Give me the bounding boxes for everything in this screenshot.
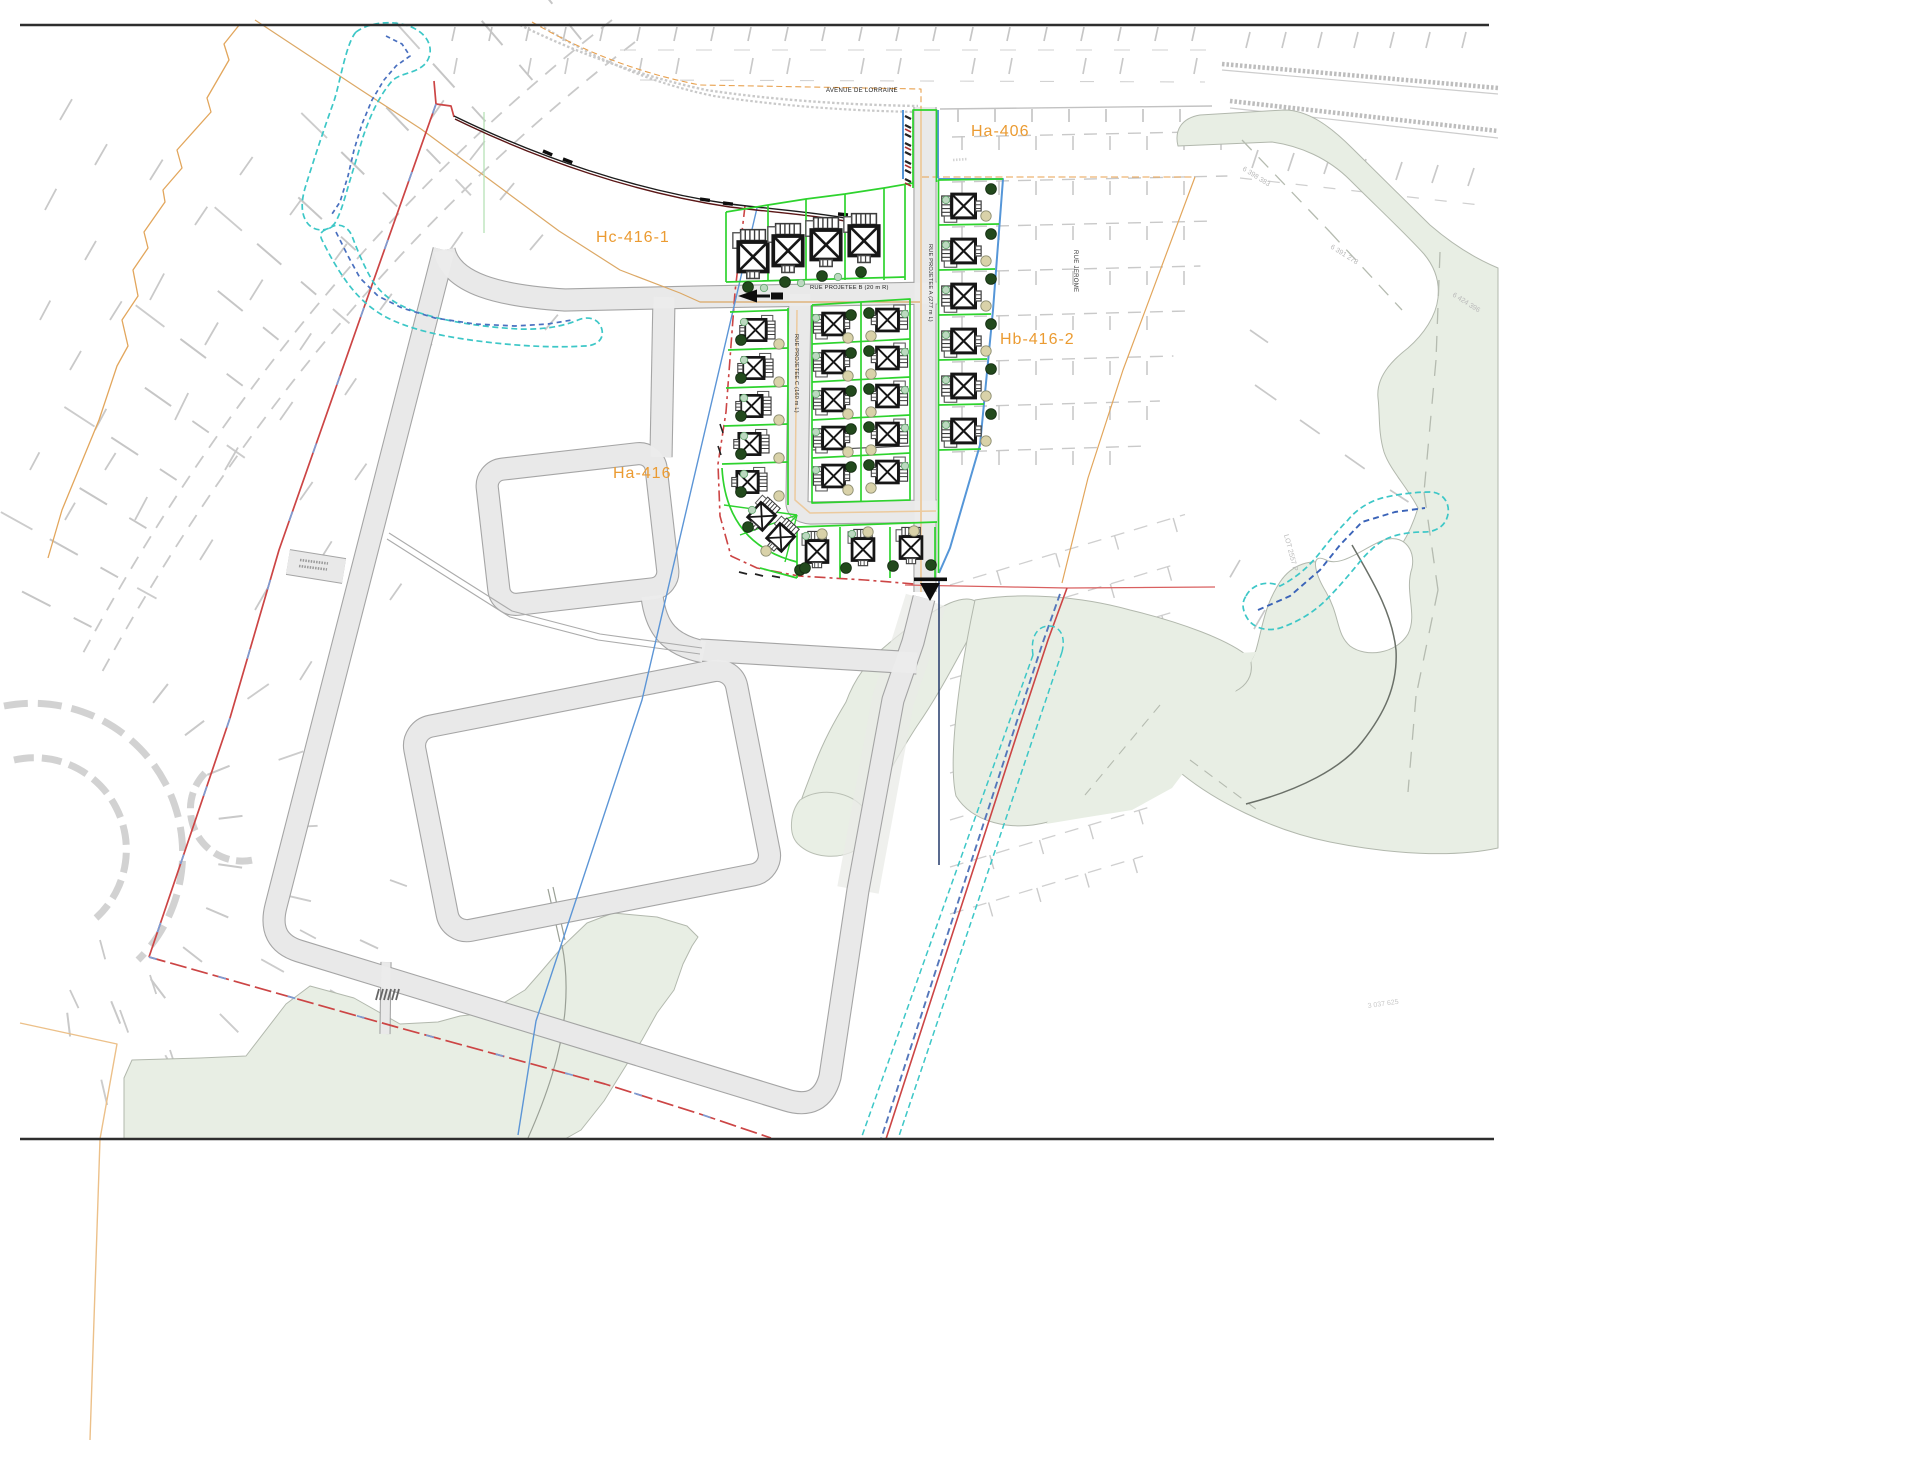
svg-text:RUE PROJETEE B (20 m R): RUE PROJETEE B (20 m R) xyxy=(810,285,889,291)
svg-text:Hc-416-1: Hc-416-1 xyxy=(596,229,670,246)
svg-text:Ha-406: Ha-406 xyxy=(971,123,1029,140)
svg-text:AVENUE DE LORRAINE: AVENUE DE LORRAINE xyxy=(826,88,898,94)
svg-text:RUE PROJETEE C (160 m L): RUE PROJETEE C (160 m L) xyxy=(793,334,799,413)
svg-text:RUE PROJETEE A (277 m L): RUE PROJETEE A (277 m L) xyxy=(927,244,933,322)
svg-text:RUE JEROME: RUE JEROME xyxy=(1072,250,1078,292)
svg-text:Hb-416-2: Hb-416-2 xyxy=(1000,331,1075,348)
svg-text:Ha-416: Ha-416 xyxy=(613,465,671,482)
